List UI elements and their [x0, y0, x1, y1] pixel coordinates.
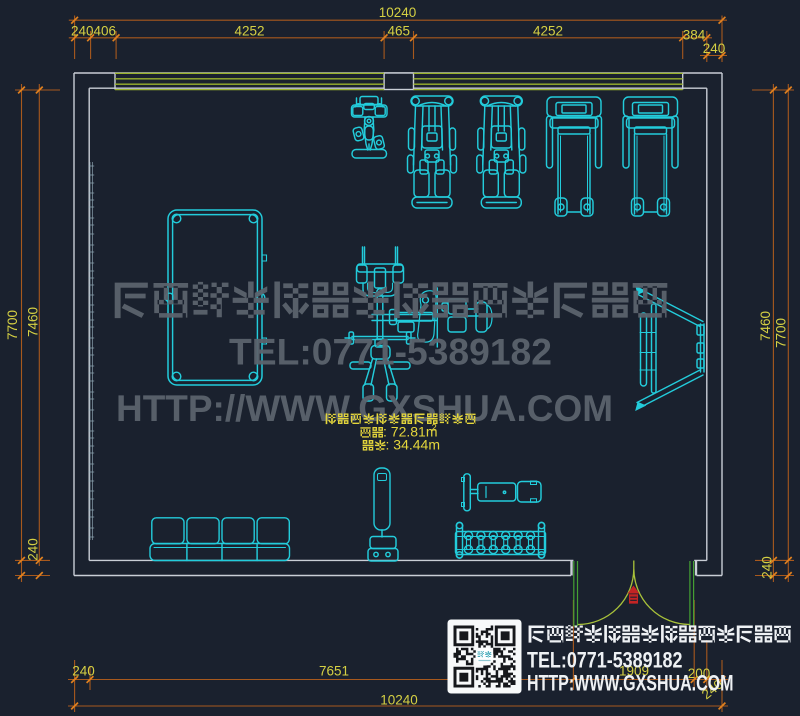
- svg-text:7651: 7651: [319, 664, 349, 679]
- svg-text:HTTP:WWW.GXSHUA.COM: HTTP:WWW.GXSHUA.COM: [527, 671, 734, 696]
- svg-text:7460: 7460: [26, 307, 41, 337]
- svg-text:10240: 10240: [380, 693, 418, 708]
- svg-text:240: 240: [759, 556, 774, 579]
- svg-text:7700: 7700: [5, 310, 20, 340]
- svg-text:4252: 4252: [533, 24, 563, 39]
- svg-text:7700: 7700: [774, 318, 789, 348]
- svg-text:TEL:0771-5389182: TEL:0771-5389182: [527, 648, 683, 673]
- svg-text:10240: 10240: [379, 5, 417, 20]
- svg-text:: 34.44m: : 34.44m: [386, 437, 440, 453]
- svg-text:240: 240: [72, 664, 95, 679]
- svg-text:240406: 240406: [71, 24, 116, 39]
- svg-text:TEL:0771-5389182: TEL:0771-5389182: [229, 332, 552, 373]
- svg-text:HTTP://WWW.GXSHUA.COM: HTTP://WWW.GXSHUA.COM: [116, 388, 613, 429]
- svg-text:465: 465: [388, 24, 411, 39]
- svg-text:7460: 7460: [758, 311, 773, 341]
- svg-text:4252: 4252: [234, 24, 264, 39]
- svg-text:240: 240: [703, 41, 726, 56]
- svg-text:2: 2: [432, 423, 437, 434]
- svg-text:240: 240: [26, 538, 41, 561]
